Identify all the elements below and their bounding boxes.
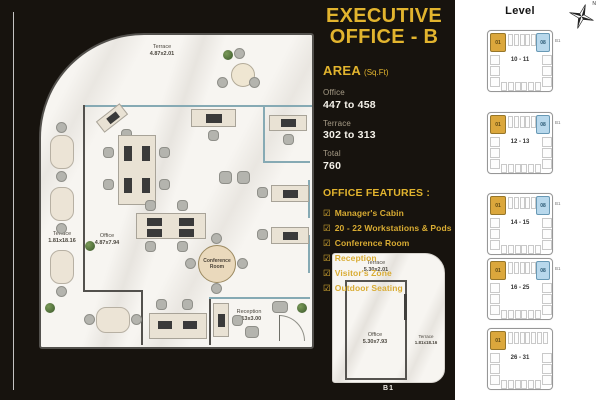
grid-cell [542,148,552,158]
grid-cell [525,332,530,344]
grid-cell [490,240,500,250]
chair [156,299,167,310]
laptop [283,190,298,198]
conference-chair [185,258,196,269]
unit-blue: 08 [536,261,550,280]
grid-cell [515,82,521,91]
chair [182,299,193,310]
grid-cell [501,164,507,173]
grid-cell [490,294,500,304]
terrace-chair [56,171,67,182]
level-range-label: 10 - 11 [488,57,552,63]
grid-cell [528,310,534,319]
grid-cell [535,164,541,173]
unit-blue: 08 [536,196,550,215]
grid-cell [515,245,521,254]
mini-door [404,294,407,320]
page-title: EXECUTIVE OFFICE - B [316,6,452,48]
terrace-top-label: Terrace 4.87x2.01 [127,44,197,57]
unit-side-label: B1 [555,266,561,271]
grid-cell [542,159,552,169]
grid-cell [490,375,500,385]
levels-panel: Level N 0108B110 - 110108B112 - 130108B1… [455,0,600,400]
grid-cell [542,66,552,76]
grid-cell [514,34,519,46]
grid-cell [535,82,541,91]
laptop [218,314,225,327]
level-diagram: 0108B112 - 13 [487,112,553,174]
workstation-bank [149,313,207,339]
terrace-table [96,307,130,333]
grid-cell [542,305,552,315]
unit-gold: 01 [490,115,506,134]
terrace-chair [131,314,142,325]
metric-terrace: Terrace 302 to 313 [323,119,452,142]
chair [159,147,170,158]
main-floorplan: Terrace 4.87x2.01 Terrace 1.81x18.16 Off… [39,33,314,349]
plant [297,303,307,313]
grid-cell [528,164,534,173]
grid-cell [521,380,527,389]
unit-side-label: B1 [555,201,561,206]
conference-room-label: Conference Room [199,258,235,270]
grid-cell [542,240,552,250]
level-range-label: 14 - 15 [488,220,552,226]
terrace-chair [56,286,67,297]
checkbox-icon: ☑ [323,238,331,248]
unit-side-label: B1 [555,120,561,125]
outdoor-chair [234,48,245,59]
checkbox-icon: ☑ [323,223,331,233]
feature-item: ☑Outdoor Seating [323,283,452,294]
grid-cell [501,245,507,254]
level-range-label: 26 - 31 [488,355,552,361]
info-panel: EXECUTIVE OFFICE - B AREA(Sq.Ft) Office … [316,6,452,298]
feature-item: ☑20 - 22 Workstations & Pods [323,223,452,234]
grid-cell [508,245,514,254]
reception-wall-h [209,297,310,299]
grid-cell [490,229,500,239]
outdoor-chair [249,77,260,88]
grid-cell [528,82,534,91]
workstation-bank [118,135,156,205]
left-border-line [13,12,14,390]
grid-cell [525,262,530,274]
grid-cell [520,116,525,128]
metric-total: Total 760 [323,149,452,172]
unit-gold: 01 [490,331,506,350]
terrace-chair [56,223,67,234]
grid-cell [525,116,530,128]
door-leaf [279,315,280,341]
manager-cabin-wall-h [263,161,310,163]
grid-cell [528,380,534,389]
desk [271,185,309,202]
terrace-chair [56,122,67,133]
grid-cell [508,116,513,128]
compass-icon: N [568,3,595,30]
plant [223,50,233,60]
terrace-table [50,187,74,221]
level-diagram: 0108B116 - 25 [487,258,553,320]
grid-cell [521,310,527,319]
level-diagram: 0126 - 31 [487,328,553,390]
visitor-armchair [272,301,288,313]
features-heading: OFFICE FEATURES : [323,187,452,199]
plant [45,303,55,313]
level-range-label: 16 - 25 [488,285,552,291]
grid-cell [535,310,541,319]
grid-cell [490,364,500,374]
grid-cell [508,262,513,274]
grid-cell [543,332,548,344]
unit-blue: 08 [536,115,550,134]
grid-cell [528,245,534,254]
laptop [206,114,222,123]
grid-cell [535,380,541,389]
mini-unit-label: B1 [332,385,445,392]
laptop [142,146,150,161]
manager-chair [283,134,294,145]
grid-cell [542,364,552,374]
grid-cell [520,34,525,46]
terrace-table [50,250,74,284]
laptop [281,119,296,127]
grid-cell [521,245,527,254]
chair [103,147,114,158]
grid-cell [542,77,552,87]
conference-chair [237,258,248,269]
grid-cell [542,229,552,239]
grid-cell [508,310,514,319]
grid-cell [515,164,521,173]
chair [103,179,114,190]
chair [177,241,188,252]
left-terrace-wall [83,105,85,292]
chair [145,241,156,252]
outdoor-chair [217,77,228,88]
laptop [179,218,194,226]
levels-heading: Level [455,5,585,17]
grid-cell [514,332,519,344]
grid-cell [515,310,521,319]
feature-item: ☑Reception [323,253,452,264]
grid-cell [508,332,513,344]
desk [271,227,309,244]
checkbox-icon: ☑ [323,268,331,278]
conference-table: Conference Room [198,245,236,283]
compass-north-label: N [592,1,596,7]
pod-seat [237,171,250,184]
laptop [147,229,162,237]
grid-cell [535,245,541,254]
level-range-label: 12 - 13 [488,139,552,145]
plant [85,241,95,251]
metric-office: Office 447 to 458 [323,88,452,111]
grid-cell [490,148,500,158]
chair [159,179,170,190]
unit-side-label: B1 [555,38,561,43]
chair [177,200,188,211]
grid-cell [514,116,519,128]
visitor-armchair [245,326,259,338]
checkbox-icon: ☑ [323,208,331,218]
grid-cell [508,380,514,389]
reception-wall-v [209,297,211,345]
laptop [183,321,197,329]
chair [208,130,219,141]
grid-cell [514,197,519,209]
grid-cell [508,164,514,173]
grid-cell [521,82,527,91]
grid-cell [542,294,552,304]
unit-gold: 01 [490,196,506,215]
grid-cell [525,34,530,46]
grid-cell [490,159,500,169]
manager-desk [269,115,307,131]
laptop [142,178,150,193]
grid-cell [490,77,500,87]
terrace-chair [84,314,95,325]
workstation-bank [136,213,206,239]
door-swing-arc [279,315,305,341]
laptop [179,229,194,237]
grid-cell [521,164,527,173]
conference-chair [211,233,222,244]
area-heading: AREA(Sq.Ft) [323,62,452,80]
terrace-table [50,135,74,169]
grid-cell [501,310,507,319]
laptop [147,218,162,226]
desk [191,109,236,127]
grid-cell [490,305,500,315]
grid-cell [508,34,513,46]
chair [257,229,268,240]
laptop [283,232,298,240]
conference-chair [211,283,222,294]
grid-cell [525,197,530,209]
mini-terrace-right-label: Terrace 1.81x18.16 [409,334,443,345]
chair [257,187,268,198]
grid-cell [508,82,514,91]
grid-cell [537,332,542,344]
manager-cabin-wall-v [263,105,265,163]
laptop [158,321,172,329]
mini-office-label: Office 5.30x7.93 [353,332,397,345]
laptop [124,178,132,193]
grid-cell [520,197,525,209]
grid-cell [542,375,552,385]
unit-gold: 01 [490,33,506,52]
grid-cell [515,380,521,389]
laptop [106,111,120,124]
unit-blue: 08 [536,33,550,52]
feature-item: ☑Manager's Cabin [323,208,452,219]
pod-seat [219,171,232,184]
grid-cell [490,66,500,76]
grid-cell [514,262,519,274]
grid-cell [520,262,525,274]
feature-item: ☑Visitor's Zone [323,268,452,279]
feature-item: ☑Conference Room [323,238,452,249]
reception-chair [232,315,243,326]
level-diagram: 0108B110 - 11 [487,30,553,92]
checkbox-icon: ☑ [323,253,331,263]
reception-desk [213,303,229,337]
grid-cell [501,380,507,389]
grid-cell [508,197,513,209]
level-diagram: 0108B114 - 15 [487,193,553,255]
alcove-wall-h [83,290,143,292]
grid-cell [531,332,536,344]
grid-cell [501,82,507,91]
features-list: ☑Manager's Cabin ☑20 - 22 Workstations &… [323,208,452,294]
laptop [124,146,132,161]
chair [145,200,156,211]
grid-cell [520,332,525,344]
unit-gold: 01 [490,261,506,280]
checkbox-icon: ☑ [323,283,331,293]
